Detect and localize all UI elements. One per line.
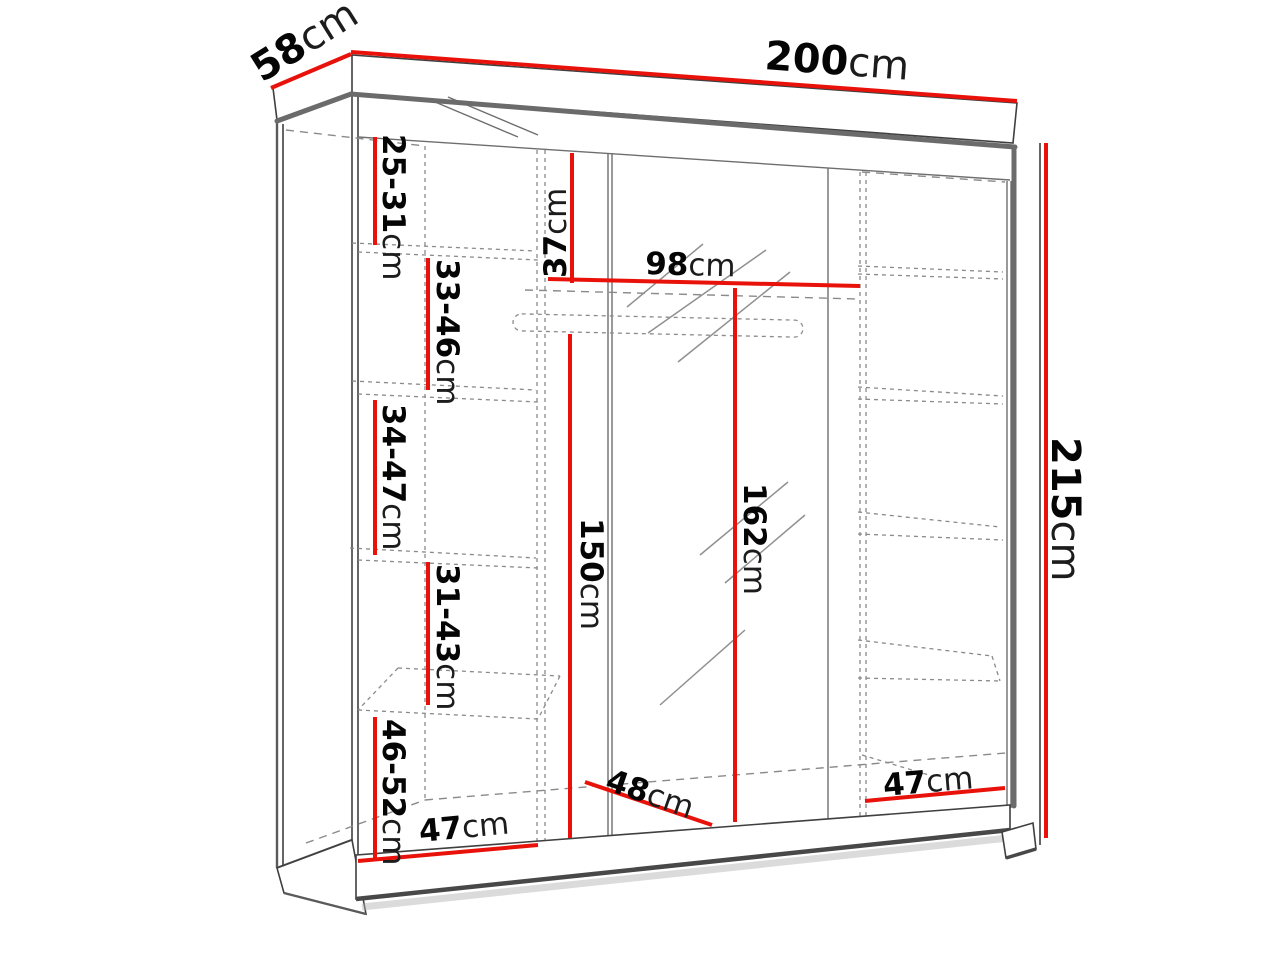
gap-25-31-label: 25-31cm bbox=[375, 134, 411, 280]
shelf-edge bbox=[858, 534, 1003, 540]
left-side-panel bbox=[277, 94, 366, 914]
gap-46-52-label: 46-52cm bbox=[375, 719, 411, 865]
gap-34-47-label: 34-47cm bbox=[375, 404, 411, 550]
mirror-hatching bbox=[627, 244, 805, 705]
width-label: 200cm bbox=[763, 33, 911, 90]
ceiling-edge bbox=[358, 137, 1010, 180]
shelf-edge bbox=[858, 678, 1000, 681]
right-shelves bbox=[858, 266, 1003, 776]
shelf-edge bbox=[398, 668, 560, 676]
left-width-label: 47cm bbox=[417, 805, 510, 849]
shelf-edge bbox=[358, 710, 538, 719]
diagram-canvas: 58cm 200cm 215cm 25-31cm 33-46cm 34-47cm… bbox=[0, 0, 1280, 960]
shelf-edge bbox=[858, 274, 1003, 279]
mirror-stroke bbox=[660, 630, 745, 705]
mid-shelf-hidden bbox=[525, 290, 858, 299]
height-label: 215cm bbox=[1042, 437, 1088, 581]
gap-31-43-label: 31-43cm bbox=[429, 564, 465, 710]
rail-drop-label: 37cm bbox=[538, 188, 574, 278]
mid-depth-label: 48cm bbox=[601, 763, 698, 826]
ceiling-hidden-right bbox=[862, 172, 1005, 182]
shelf-edge bbox=[858, 640, 992, 656]
interior-structure bbox=[358, 97, 1040, 845]
shelf-edge bbox=[858, 399, 1003, 404]
wardrobe-dimension-diagram: 58cm 200cm 215cm 25-31cm 33-46cm 34-47cm… bbox=[0, 0, 1280, 960]
mid-height-label: 162cm bbox=[736, 483, 772, 595]
shelf-side bbox=[358, 668, 398, 710]
shelf-side bbox=[992, 656, 1000, 681]
mid-width-label: 98cm bbox=[645, 246, 736, 284]
shelf-edge bbox=[858, 266, 1003, 272]
hang-height-label: 150cm bbox=[573, 518, 609, 630]
shelf-edge bbox=[858, 512, 1000, 527]
shelf-edge bbox=[858, 387, 1003, 396]
shelf-side bbox=[538, 676, 560, 719]
gap-33-46-label: 33-46cm bbox=[429, 259, 465, 405]
right-width-label: 47cm bbox=[882, 760, 975, 804]
